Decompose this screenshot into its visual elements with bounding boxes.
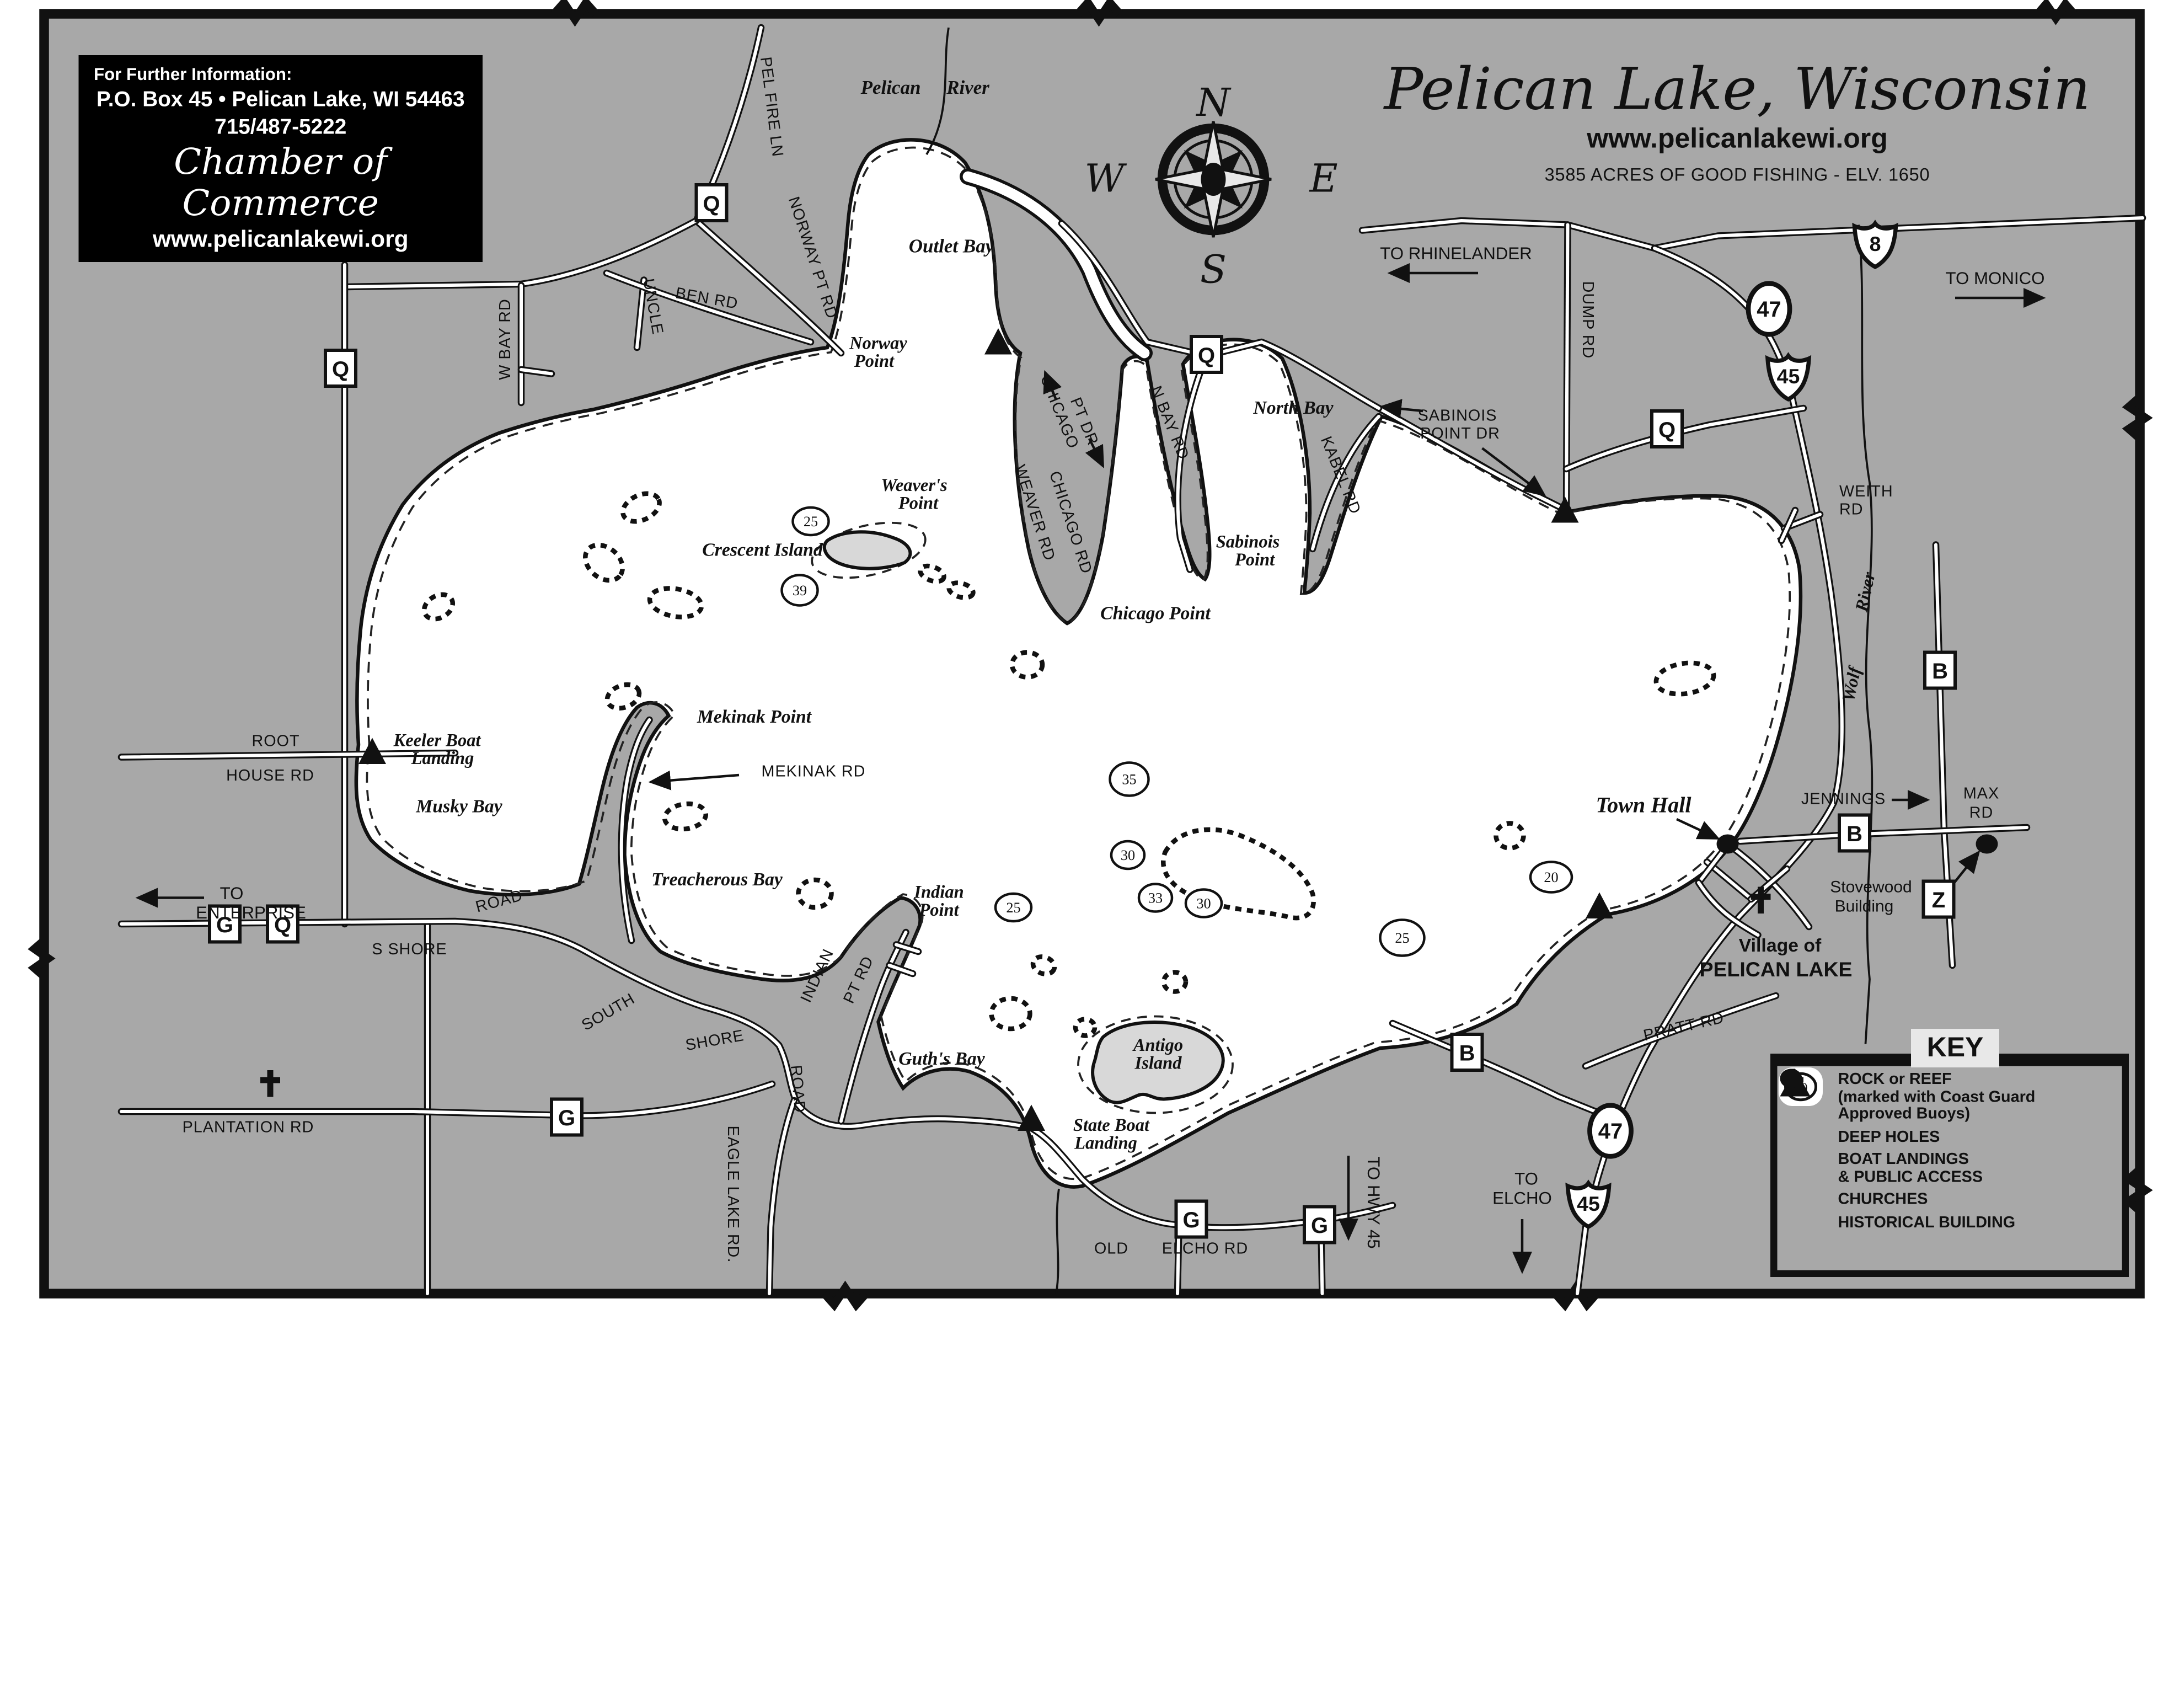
place-label-pelican-lake: PELICAN LAKE — [1699, 958, 1852, 981]
road-label-elcho-rd: ELCHO RD — [1162, 1240, 1249, 1258]
chamber-info-box: For Further Information: P.O. Box 45 • P… — [79, 55, 483, 262]
historical-building-icon — [1717, 835, 1739, 854]
legend-item-text: CHURCHES — [1838, 1192, 1928, 1209]
svg-text:47: 47 — [1598, 1119, 1623, 1144]
road-label-plantation-rd: PLANTATION RD — [183, 1119, 314, 1136]
svg-text:G: G — [558, 1106, 575, 1130]
info-address: P.O. Box 45 • Pelican Lake, WI 54463 — [79, 88, 483, 113]
road-label-max: MAX — [1963, 785, 1999, 803]
svg-text:Q: Q — [332, 357, 349, 382]
direction-label-to-hwy-45: TO HWY 45 — [1364, 1156, 1383, 1248]
road-label-mekinak-rd: MEKINAK RD — [762, 763, 866, 781]
state-highway-47-shield: 47 — [1590, 1105, 1631, 1157]
road-label-jennings: JENNINGS — [1801, 790, 1886, 808]
feature-label-river: River — [946, 77, 989, 98]
legend-title: KEY — [1911, 1029, 1999, 1067]
map-page: 253935303330252520 845454747QQQQQGGGGBBB… — [0, 0, 2184, 1688]
road-label-s-shore: S SHORE — [372, 941, 447, 958]
compass-s-letter: S — [1200, 247, 1227, 292]
direction-label-to-rhinelander: TO RHINELANDER — [1380, 244, 1532, 263]
road-label-rd: RD — [1969, 804, 1994, 822]
compass-e-letter: E — [1308, 156, 1337, 201]
feature-label-outlet-bay: Outlet Bay — [909, 236, 994, 257]
road-label-sabinois: SABINOIS — [1418, 407, 1497, 425]
road-label-w-bay-rd: W BAY RD — [496, 298, 514, 380]
info-website: www.pelicanlakewi.org — [79, 226, 483, 254]
road-label-weith: WEITH — [1839, 483, 1893, 500]
direction-label-to: TO — [1514, 1169, 1538, 1189]
landmark-label-landing: Landing — [1074, 1134, 1137, 1153]
feature-label-mekinak-point: Mekinak Point — [697, 707, 812, 727]
info-phone: 715/487-5222 — [79, 116, 483, 141]
info-heading: For Further Information: — [79, 55, 483, 84]
direction-label-elcho: ELCHO — [1492, 1189, 1552, 1208]
feature-label-north-bay: North Bay — [1252, 398, 1334, 418]
legend-item-text: DEEP HOLES — [1838, 1129, 1940, 1146]
place-label-village-of: Village of — [1739, 935, 1822, 956]
road-label-old: OLD — [1094, 1240, 1128, 1258]
county-road-G-marker: G — [1176, 1201, 1207, 1237]
county-road-Q-marker: Q — [325, 350, 356, 386]
county-road-Z-marker: Z — [1924, 882, 1954, 917]
feature-label-pelican: Pelican — [860, 77, 921, 98]
deep-hole-depth: 20 — [1544, 869, 1558, 885]
road-label-root: ROOT — [251, 733, 299, 750]
svg-text:Z: Z — [1932, 888, 1945, 912]
county-road-Q-marker: Q — [1652, 411, 1682, 447]
deep-hole-depth: 25 — [1006, 900, 1020, 916]
county-road-G-marker: G — [1304, 1207, 1335, 1243]
svg-text:G: G — [1311, 1214, 1328, 1238]
legend-item-text: BOAT LANDINGS& PUBLIC ACCESS — [1838, 1152, 1983, 1187]
deep-hole-depth: 30 — [1196, 896, 1211, 912]
legend-item-rock-or-reef: ROCK or REEF(marked with Coast GuardAppr… — [1791, 1072, 2114, 1124]
svg-text:8: 8 — [1870, 232, 1881, 255]
legend-item-churches: CHURCHES — [1791, 1192, 2114, 1209]
county-road-Q-marker: Q — [1191, 336, 1222, 372]
deep-hole-depth: 33 — [1148, 890, 1163, 906]
road-label-point-dr: POINT DR — [1420, 425, 1500, 442]
landmark-label-keeler-boat: Keeler Boat — [393, 731, 481, 751]
map-website: www.pelicanlakewi.org — [1379, 124, 2096, 156]
feature-label-weaver-s: Weaver's — [881, 476, 947, 495]
feature-label-treacherous-bay: Treacherous Bay — [651, 869, 783, 890]
feature-label-antigo: Antigo — [1132, 1035, 1183, 1055]
feature-label-sabinois: Sabinois — [1216, 532, 1280, 552]
map-title-block: Pelican Lake, Wisconsin www.pelicanlakew… — [1379, 58, 2096, 185]
historical-building-icon — [1976, 835, 1998, 854]
feature-label-chicago-point: Chicago Point — [1100, 603, 1211, 624]
county-road-B-marker: B — [1839, 815, 1870, 851]
place-label-stovewood: Stovewood — [1830, 878, 1912, 896]
legend-item-text: ROCK or REEF(marked with Coast GuardAppr… — [1838, 1072, 2036, 1124]
county-road-G-marker: G — [552, 1099, 582, 1135]
legend-item-boat-landings: BOAT LANDINGS& PUBLIC ACCESS — [1791, 1152, 2114, 1187]
compass-n-letter: N — [1195, 80, 1232, 125]
feature-label-guth-s-bay: Guth's Bay — [898, 1049, 986, 1069]
road-label-rd: RD — [1839, 501, 1864, 519]
legend-item-text: HISTORICAL BUILDING — [1838, 1214, 2016, 1231]
feature-label-island: Island — [1134, 1054, 1182, 1073]
legend-item-deep-holes: 20DEEP HOLES — [1791, 1129, 2114, 1146]
landmark-label-landing: Landing — [411, 749, 474, 768]
road-label-dump-rd: DUMP RD — [1579, 281, 1597, 359]
landmark-label-state-boat: State Boat — [1073, 1115, 1150, 1135]
road-label-house-rd: HOUSE RD — [226, 767, 314, 784]
svg-text:G: G — [1182, 1208, 1200, 1232]
svg-text:B: B — [1846, 822, 1862, 846]
legend-item-historical-building: HISTORICAL BUILDING — [1791, 1214, 2114, 1231]
svg-text:B: B — [1459, 1041, 1475, 1066]
county-road-B-marker: B — [1925, 653, 1955, 688]
svg-text:Q: Q — [1658, 418, 1676, 442]
map-title: Pelican Lake, Wisconsin — [1379, 58, 2096, 121]
legend-box: ROCK or REEF(marked with Coast GuardAppr… — [1770, 1054, 2129, 1277]
county-road-Q-marker: Q — [697, 185, 727, 221]
svg-text:45: 45 — [1577, 1192, 1600, 1215]
map-tagline: 3585 ACRES OF GOOD FISHING - ELV. 1650 — [1379, 164, 2096, 185]
feature-label-musky-bay: Musky Bay — [415, 797, 503, 817]
deep-hole-depth: 30 — [1121, 847, 1135, 863]
svg-text:Q: Q — [703, 192, 720, 216]
state-highway-47-shield: 47 — [1748, 284, 1790, 335]
deep-hole-depth: 25 — [1395, 930, 1409, 946]
road-label-eagle-lake-rd: EAGLE LAKE RD. — [724, 1126, 742, 1263]
place-label-building: Building — [1835, 898, 1894, 916]
feature-label-point: Point — [1234, 550, 1275, 570]
deep-hole-depth: 25 — [804, 514, 818, 530]
svg-text:47: 47 — [1757, 297, 1781, 322]
svg-text:B: B — [1932, 659, 1948, 683]
info-chamber-script: Chamber of Commerce — [79, 142, 483, 225]
feature-label-indian: Indian — [913, 883, 963, 902]
feature-label-point: Point — [918, 900, 959, 920]
svg-text:45: 45 — [1777, 365, 1800, 388]
feature-label-point: Point — [854, 351, 895, 371]
feature-label-norway: Norway — [849, 334, 907, 354]
deep-hole-depth: 35 — [1122, 772, 1136, 788]
direction-label-to: TO — [220, 884, 244, 903]
direction-label-to-monico: TO MONICO — [1946, 269, 2045, 288]
compass-w-letter: W — [1085, 156, 1127, 201]
svg-text:Q: Q — [1198, 344, 1215, 368]
direction-label-enterprise: ENTERPRISE — [196, 903, 306, 922]
county-road-B-marker: B — [1452, 1034, 1482, 1070]
feature-label-town-hall: Town Hall — [1596, 793, 1691, 818]
feature-label-crescent-island: Crescent Island — [702, 540, 823, 560]
feature-label-point: Point — [898, 494, 939, 514]
deep-hole-depth: 39 — [793, 583, 807, 599]
